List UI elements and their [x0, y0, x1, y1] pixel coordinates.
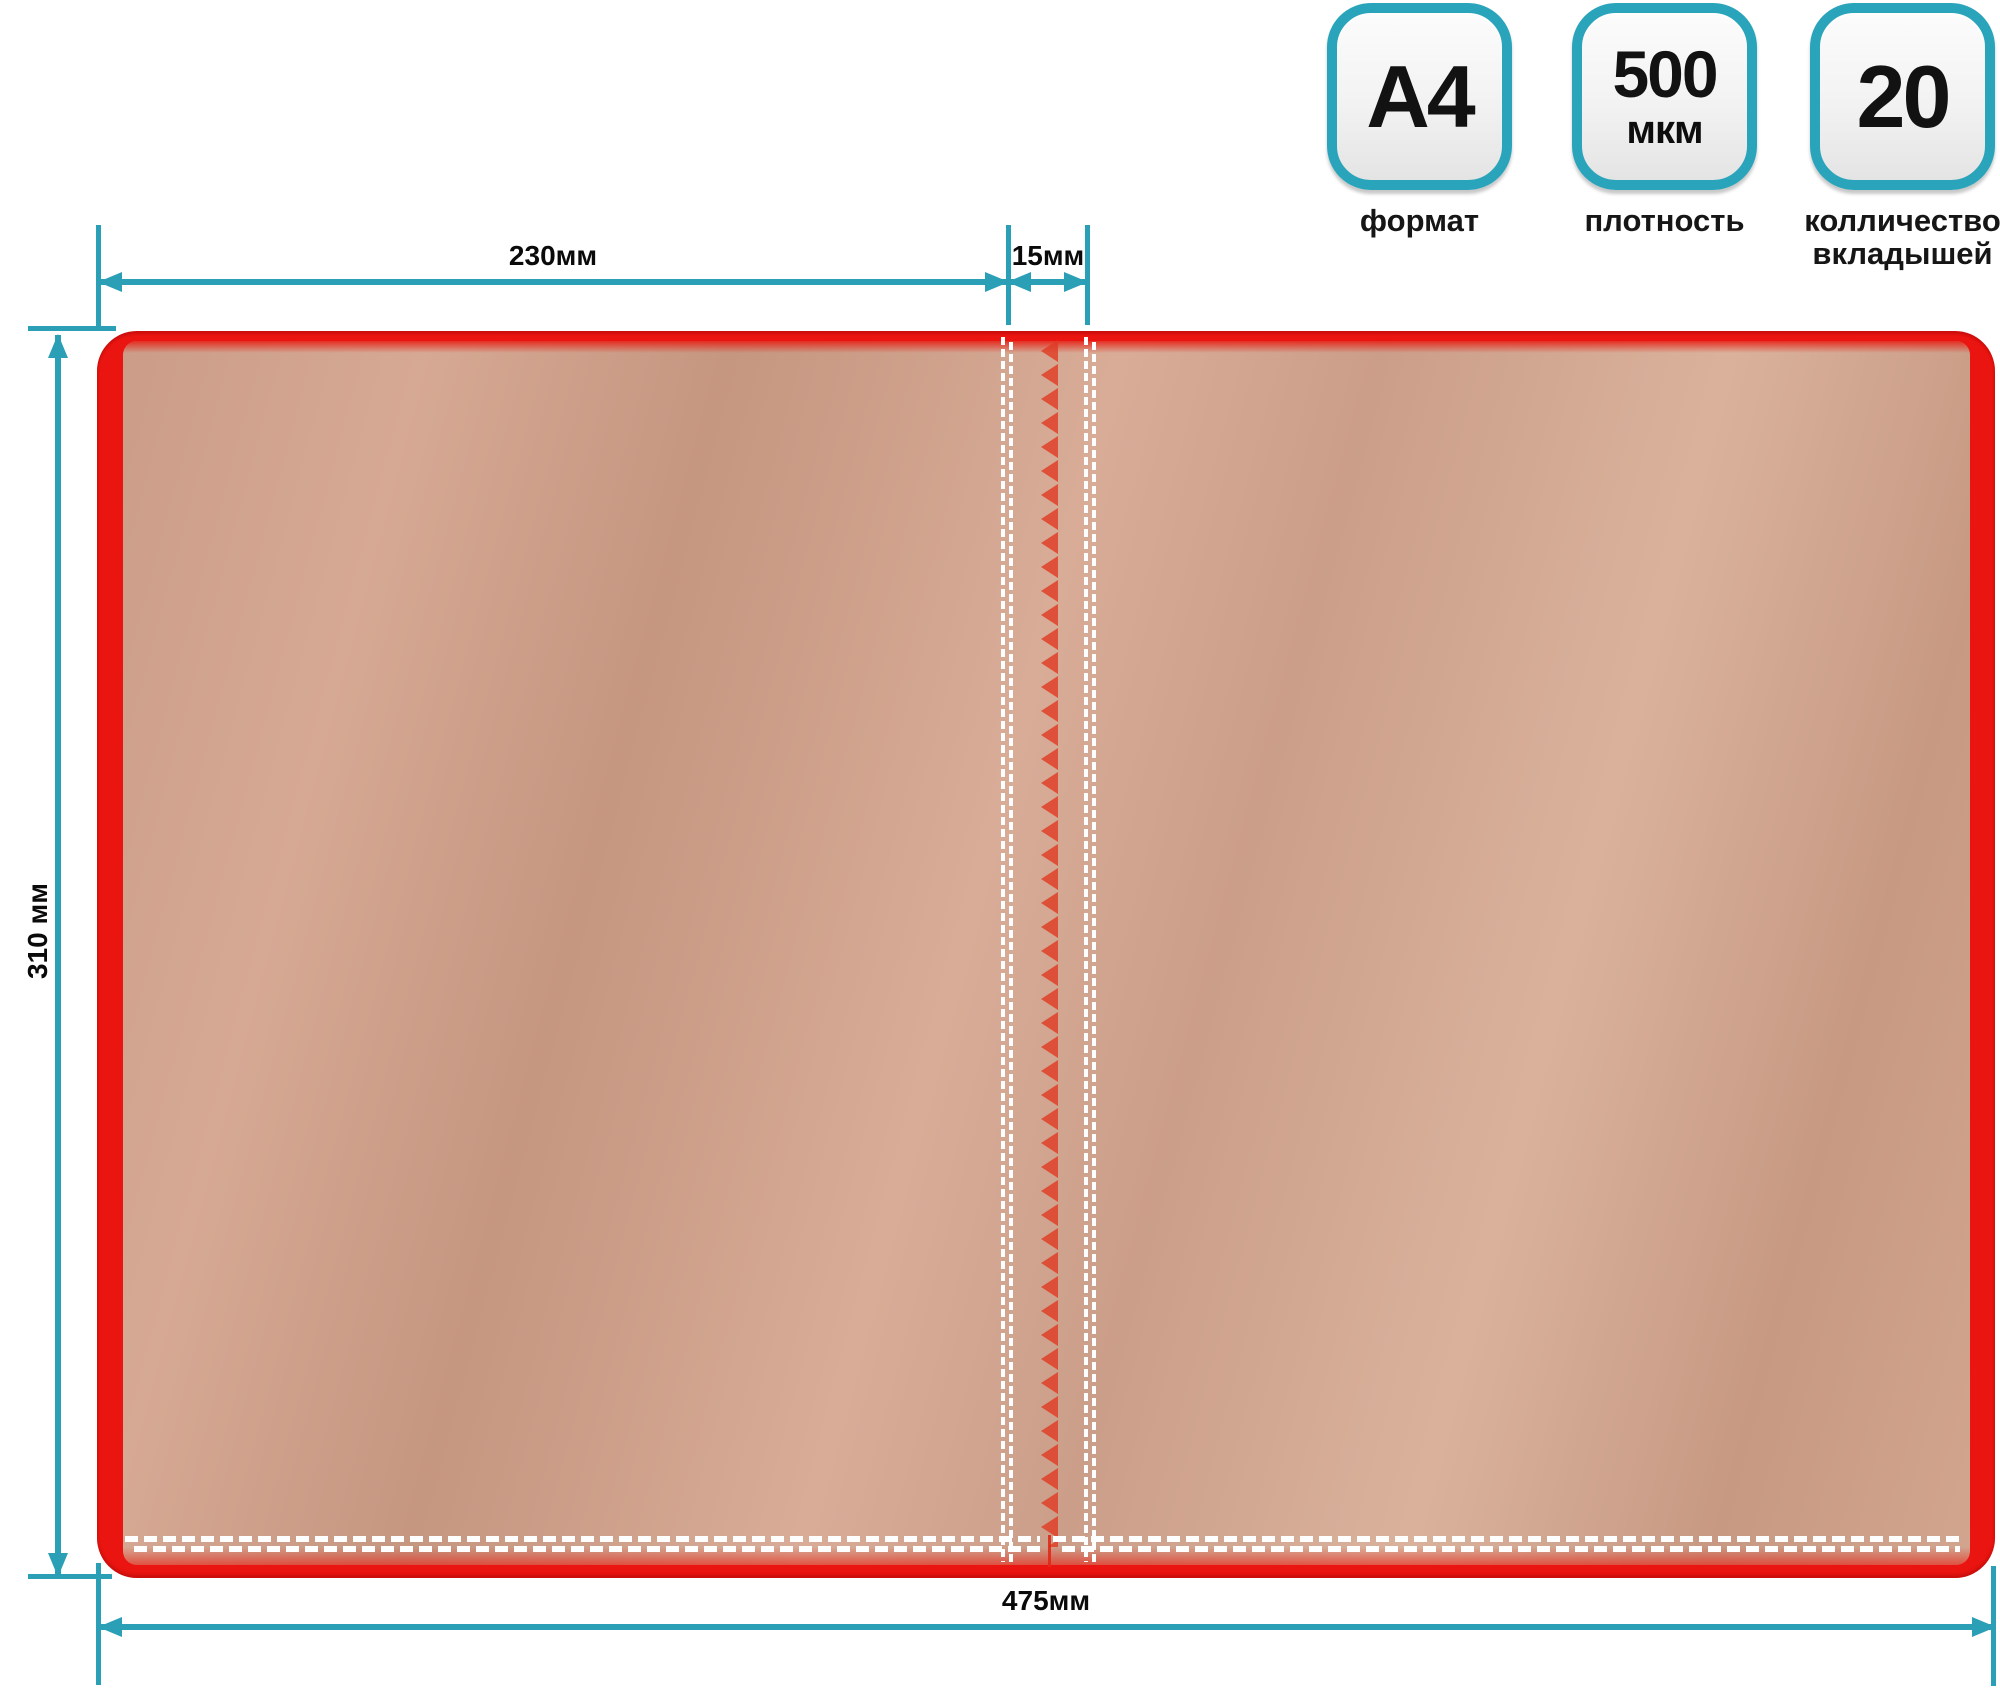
dim-label-panel-width: 230мм	[453, 240, 653, 272]
spine-fold-line	[1048, 1535, 1051, 1567]
spine-stitch-right	[1084, 337, 1097, 1562]
badge-format: A4 формат	[1327, 3, 1512, 237]
dim-line-panel-width	[99, 279, 1008, 285]
badge-insert-count-box: 20	[1810, 3, 1995, 190]
badge-insert-count-value: 20	[1857, 55, 1949, 139]
badge-density-value: 500	[1612, 43, 1716, 106]
dim-label-height: 310 мм	[22, 831, 54, 1031]
dim-label-total-width: 475мм	[946, 1585, 1146, 1617]
dim-line-height	[55, 335, 61, 1576]
arrowhead-left	[98, 272, 122, 292]
spine-stitch-left	[1001, 337, 1014, 1562]
extension-line-height-top	[28, 326, 116, 331]
folder	[97, 331, 1995, 1578]
badge-format-box: A4	[1327, 3, 1512, 190]
arrowhead-up	[48, 334, 68, 358]
dim-line-spine-width	[1008, 279, 1087, 285]
arrowhead-right	[1972, 1617, 1996, 1637]
arrowhead-left	[98, 1617, 122, 1637]
badge-density-box: 500 мкм	[1572, 3, 1757, 190]
dim-label-spine-width: 15мм	[998, 240, 1098, 272]
bottom-stitch-left	[125, 1536, 1040, 1553]
product-infographic: A4 формат 500 мкм плотность 20 колличест…	[0, 0, 2000, 1688]
badge-format-value: A4	[1366, 55, 1473, 139]
badge-density: 500 мкм плотность	[1572, 3, 1757, 237]
arrowhead-right	[985, 272, 1009, 292]
badge-format-label: формат	[1280, 204, 1560, 237]
bottom-stitch-right	[1053, 1536, 1960, 1553]
dim-line-total-width	[99, 1624, 1995, 1630]
arrowhead-left	[1007, 272, 1031, 292]
badge-insert-count: 20 колличество вкладышей	[1810, 3, 1995, 270]
spine-zigzag-stitch	[1038, 339, 1058, 1547]
badge-density-unit: мкм	[1626, 110, 1702, 150]
badge-insert-count-label: колличество вкладышей	[1763, 204, 2000, 270]
arrowhead-down	[48, 1553, 68, 1577]
arrowhead-right	[1064, 272, 1088, 292]
